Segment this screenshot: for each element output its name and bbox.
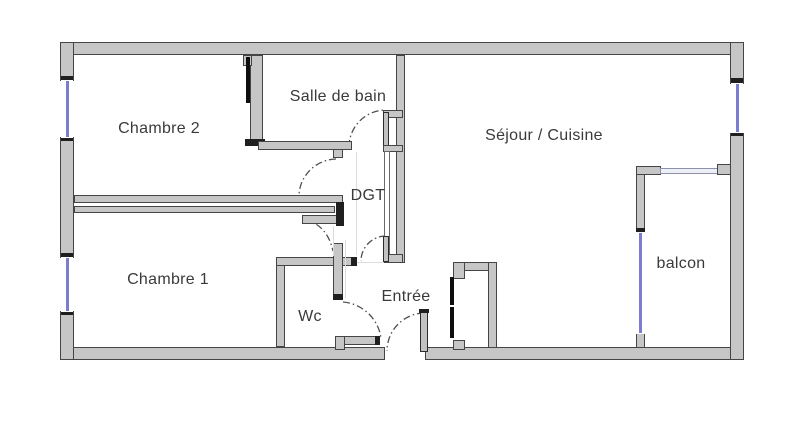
- room-label-entree: Entrée: [382, 289, 431, 305]
- room-label-salle-de-bain: Salle de bain: [290, 89, 386, 105]
- balcony-top-corner: [636, 166, 661, 175]
- wc-left-wall: [276, 260, 285, 347]
- door-arc-salle-de-bain: [349, 110, 386, 147]
- door-arc-entree: [387, 313, 424, 351]
- outer-wall-bottom-right: [425, 347, 744, 360]
- room-boundary-entree-north: [357, 262, 384, 263]
- door-arc-wc: [343, 302, 381, 338]
- room-label-chambre-1: Chambre 1: [127, 272, 209, 288]
- room-label-sejour-cuisine: Séjour / Cuisine: [485, 128, 603, 144]
- room-boundary-wc-east: [345, 240, 346, 298]
- window-balcon-door-glass: [639, 233, 642, 333]
- outer-wall-right-lower: [730, 133, 744, 360]
- wc-bottom-wall-end-cap: [375, 336, 380, 345]
- balcony-left-wall-lower-stub: [636, 333, 645, 348]
- window-sejour-glass: [736, 84, 739, 132]
- room-boundary-entree-west: [333, 226, 334, 256]
- sejour-left-wall: [396, 55, 405, 263]
- door-arc-chambre-2: [299, 159, 336, 194]
- closet-top-left-stub: [453, 262, 465, 279]
- window-chambre2-glass: [66, 81, 69, 137]
- closet-door-leaf-lower: [450, 307, 454, 338]
- outer-wall-top: [60, 42, 744, 55]
- balcony-left-wall-upper: [636, 166, 645, 233]
- closet-bottom-left-stub: [453, 340, 465, 350]
- closet-right-wall: [488, 262, 497, 348]
- floor-plan: Chambre 2Salle de bainSéjour / CuisineDG…: [0, 0, 800, 434]
- entry-door-leaf: [420, 311, 428, 352]
- balcony-railing: [660, 168, 718, 174]
- wc-bottom-wall-stub: [335, 336, 345, 350]
- room-label-wc: Wc: [298, 309, 322, 325]
- wc-right-wall-bottom-cap: [333, 294, 343, 300]
- bedroom-divider-end-cap: [336, 202, 344, 226]
- outer-wall-left-lower: [60, 311, 74, 360]
- room-label-dgt: DGT: [351, 188, 386, 204]
- entry-door-leaf-cap: [419, 309, 429, 313]
- wc-right-wall: [333, 243, 343, 300]
- bedroom-divider-wall-upper: [74, 195, 343, 203]
- closet-door-leaf-upper: [450, 277, 454, 305]
- bedroom-divider-wall-lower: [74, 206, 335, 213]
- bathroom-door-leaf: [383, 112, 389, 146]
- balcony-railing-right-stub: [717, 164, 731, 175]
- outer-wall-left-middle: [60, 137, 74, 258]
- bathroom-left-wall: [250, 55, 263, 146]
- room-label-chambre-2: Chambre 2: [118, 121, 200, 137]
- bathroom-door-jamb-stub: [333, 149, 343, 158]
- dgt-south-door-leaf: [383, 236, 389, 262]
- window-chambre1-glass: [66, 258, 69, 311]
- chambre2-door-leaf: [246, 57, 250, 103]
- room-label-balcon: balcon: [657, 256, 706, 272]
